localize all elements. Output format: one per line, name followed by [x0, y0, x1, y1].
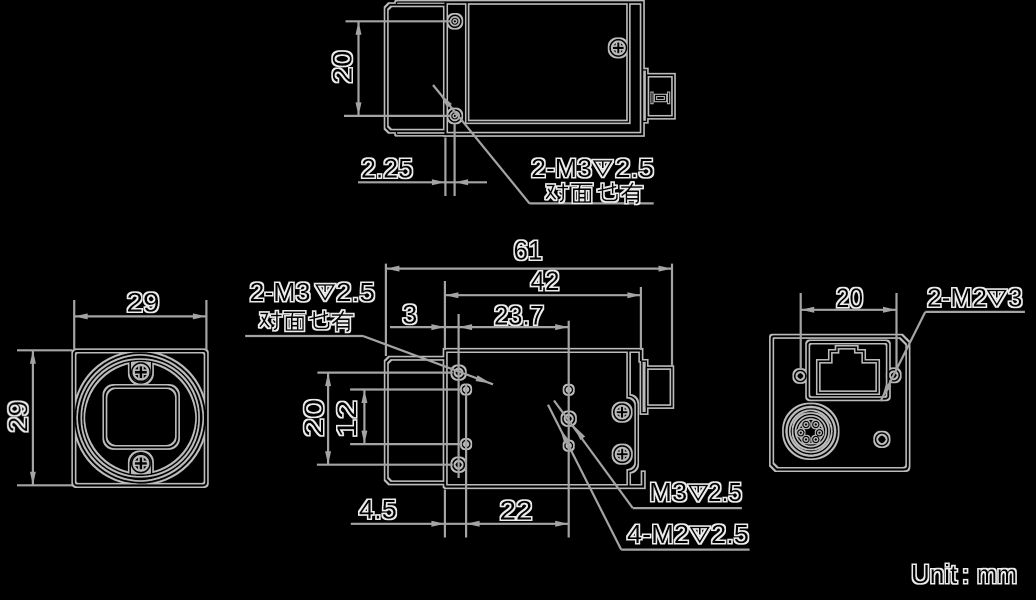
- svg-text:Unit: Unit: [911, 559, 958, 589]
- svg-text:20: 20: [836, 283, 863, 313]
- svg-text:4.5: 4.5: [359, 495, 397, 525]
- svg-text:3: 3: [1008, 283, 1022, 313]
- svg-text:61: 61: [514, 236, 543, 266]
- svg-text:3: 3: [402, 300, 417, 330]
- svg-text:29: 29: [3, 401, 33, 433]
- svg-text:20: 20: [328, 51, 358, 84]
- svg-text:29: 29: [127, 288, 160, 318]
- svg-text:mm: mm: [977, 559, 1017, 589]
- svg-text:2-M3: 2-M3: [250, 277, 311, 307]
- svg-text:M3: M3: [649, 477, 687, 507]
- svg-text:12: 12: [332, 400, 362, 438]
- svg-text:4-M2: 4-M2: [627, 519, 689, 549]
- svg-text:2-M2: 2-M2: [927, 283, 987, 313]
- svg-text:2.5: 2.5: [336, 277, 375, 307]
- svg-text:2.5: 2.5: [711, 519, 749, 549]
- svg-text:22: 22: [500, 496, 533, 526]
- svg-text:2.5: 2.5: [615, 153, 654, 183]
- svg-text:2.5: 2.5: [708, 477, 742, 507]
- svg-text:2-M3: 2-M3: [531, 153, 592, 183]
- svg-text:23.7: 23.7: [494, 301, 544, 331]
- svg-text:20: 20: [299, 399, 329, 437]
- svg-text:2.25: 2.25: [361, 154, 413, 184]
- svg-text:42: 42: [531, 266, 560, 296]
- svg-text::: :: [962, 559, 969, 589]
